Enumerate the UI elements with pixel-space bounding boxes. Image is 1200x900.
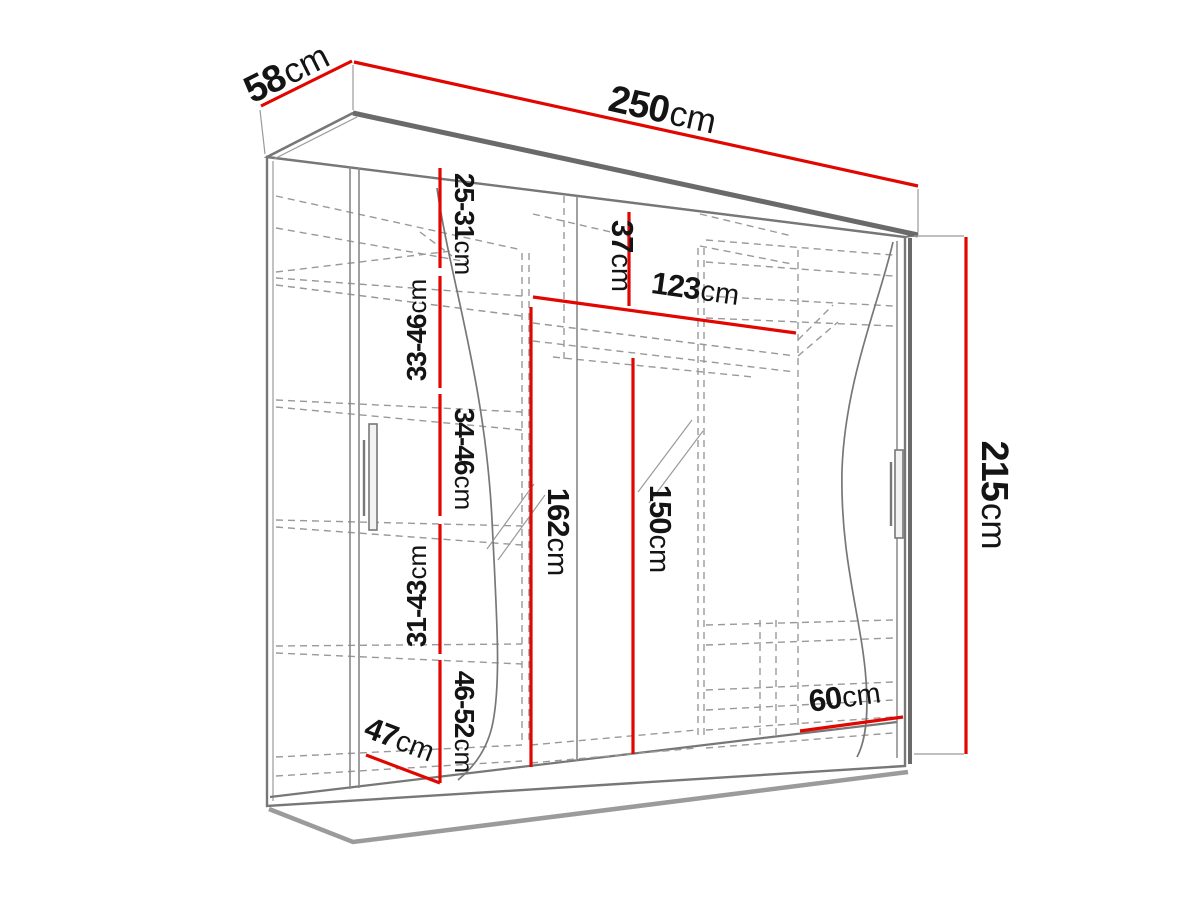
mirror-shine-line — [487, 484, 534, 549]
left-door-handle — [364, 424, 377, 530]
dim-label-top-shelf: 37cm — [605, 220, 640, 292]
dim-label-gap-2: 33-46cm — [401, 279, 432, 381]
shelf-dashed-line — [706, 620, 893, 625]
right-door-handle — [891, 450, 903, 538]
shelf-dashed-line — [276, 653, 522, 664]
dim-label-mirror-right: 150cm — [643, 485, 678, 573]
dim-label-gap-3: 34-46cm — [449, 408, 480, 510]
shelf-dashed-line — [531, 730, 697, 745]
mirror-shine-line — [498, 495, 545, 560]
dim-label-gap-4: 31-43cm — [401, 545, 432, 647]
shelf-dashed-line — [700, 246, 792, 264]
base-shadow-edge — [269, 772, 908, 842]
shelf-dashed-line — [276, 285, 522, 316]
wardrobe-dimension-diagram: 58cm 250cm 215cm 25-31cm 33-46cm 34-46cm… — [0, 0, 1200, 900]
top-panel-face — [267, 113, 918, 237]
top-left-edge — [267, 113, 353, 157]
dim-label-gap-5: 46-52cm — [449, 671, 480, 773]
diagram-canvas: 58cm 250cm 215cm 25-31cm 33-46cm 34-46cm… — [0, 0, 1200, 900]
shelf-dashed-line — [276, 520, 522, 526]
top-left-inner-edge — [274, 117, 357, 159]
shelf-dashed-line — [276, 196, 522, 250]
shelf-dashed-line — [706, 240, 893, 255]
dim-label-right-section: 60cm — [806, 674, 882, 718]
shelf-dashed-line — [533, 341, 795, 372]
dim-label-height: 215cm — [973, 440, 1015, 549]
shelf-dashed-line — [276, 527, 522, 545]
dim-label-gap-1: 25-31cm — [449, 173, 480, 275]
shelf-dashed-line — [553, 357, 753, 377]
dim-label-depth: 58cm — [237, 35, 335, 112]
dim-label-left-section: 47cm — [360, 710, 440, 769]
shelf-dashed-line — [706, 262, 893, 276]
shelf-dashed-line — [276, 644, 522, 646]
dim-label-width: 250cm — [605, 78, 721, 142]
top-back-edge — [353, 113, 918, 235]
shelf-dashed-line — [706, 638, 893, 645]
shelf-dashed-line — [798, 322, 838, 356]
dim-label-hanging-width: 123cm — [649, 265, 741, 312]
extension-tick — [260, 110, 265, 154]
shelf-dashed-line — [276, 250, 460, 272]
dim-label-mirror-left: 162cm — [541, 488, 576, 576]
shelf-dashed-line — [276, 278, 522, 296]
